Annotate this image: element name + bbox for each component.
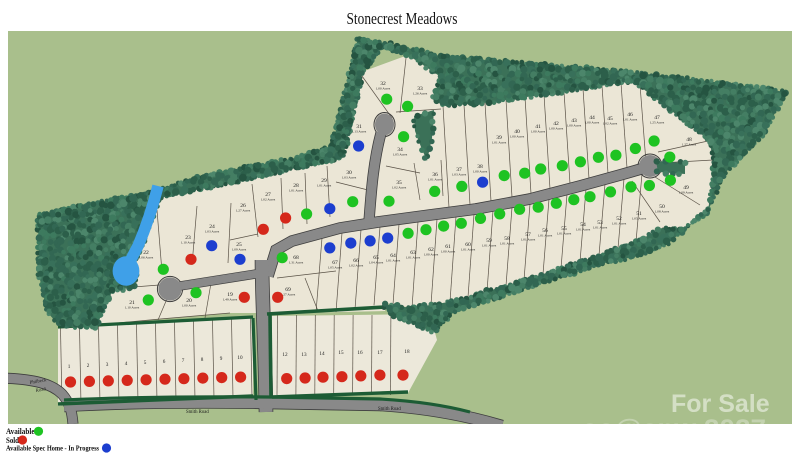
svg-text:1.00 Acres: 1.00 Acres xyxy=(376,87,391,91)
svg-text:1.02 Acres: 1.02 Acres xyxy=(392,186,407,190)
svg-text:1.09 Acres: 1.09 Acres xyxy=(679,191,694,195)
svg-text:6: 6 xyxy=(163,359,166,365)
svg-text:1.49 Acres: 1.49 Acres xyxy=(223,298,238,302)
svg-text:1.00 Acres: 1.00 Acres xyxy=(531,130,546,134)
svg-text:1.05 Acres: 1.05 Acres xyxy=(393,153,408,157)
svg-text:13: 13 xyxy=(301,352,307,358)
svg-text:1.01 Acres: 1.01 Acres xyxy=(538,234,553,238)
svg-text:1.00 Acres: 1.00 Acres xyxy=(424,253,439,257)
svg-text:10: 10 xyxy=(237,355,243,361)
svg-text:1.10 Acres: 1.10 Acres xyxy=(125,306,140,310)
svg-text:12: 12 xyxy=(282,352,288,358)
svg-text:2: 2 xyxy=(87,363,90,369)
svg-text:16: 16 xyxy=(357,350,363,356)
svg-text:1.01 Acres: 1.01 Acres xyxy=(289,189,304,193)
svg-text:1.03 Acres: 1.03 Acres xyxy=(205,230,220,234)
svg-text:18: 18 xyxy=(404,349,410,355)
svg-text:1.01 Acres: 1.01 Acres xyxy=(576,228,591,232)
svg-text:3: 3 xyxy=(106,362,109,368)
svg-text:1.01 Acres: 1.01 Acres xyxy=(406,256,421,260)
svg-text:1.00 Acres: 1.00 Acres xyxy=(473,170,488,174)
svg-text:4: 4 xyxy=(125,361,128,367)
svg-text:For Sale: For Sale xyxy=(671,390,770,418)
svg-text:1.05 Acres: 1.05 Acres xyxy=(632,217,647,221)
svg-text:1.06 Acres: 1.06 Acres xyxy=(139,256,154,260)
svg-text:1.04 Acres: 1.04 Acres xyxy=(369,261,384,265)
svg-text:15: 15 xyxy=(338,350,344,356)
svg-text:8: 8 xyxy=(201,357,204,363)
svg-text:1.09 Acres: 1.09 Acres xyxy=(232,248,247,252)
svg-text:1.01 Acres: 1.01 Acres xyxy=(492,141,507,145)
svg-text:1.26 Acres: 1.26 Acres xyxy=(413,92,428,96)
svg-text:Smith Road: Smith Road xyxy=(186,410,209,415)
svg-text:1.08 Acres: 1.08 Acres xyxy=(655,210,670,214)
svg-text:1.00 Acres: 1.00 Acres xyxy=(182,304,197,308)
svg-text:1.01 Acres: 1.01 Acres xyxy=(623,118,638,122)
svg-text:1.01 Acres: 1.01 Acres xyxy=(521,238,536,242)
svg-text:1.01 Acres: 1.01 Acres xyxy=(500,242,515,246)
svg-text:1.01 Acres: 1.01 Acres xyxy=(612,222,627,226)
svg-text:14: 14 xyxy=(319,351,325,357)
svg-text:1.13 Acres: 1.13 Acres xyxy=(352,130,367,134)
svg-text:Stonecrest Meadows: Stonecrest Meadows xyxy=(347,9,458,28)
svg-text:1.03 Acres: 1.03 Acres xyxy=(342,176,357,180)
svg-text:1.02 Acres: 1.02 Acres xyxy=(603,122,618,126)
svg-text:5: 5 xyxy=(144,360,147,366)
svg-text:9: 9 xyxy=(220,356,223,362)
svg-text:Available Spec Home - In Progr: Available Spec Home - In Progress xyxy=(6,446,99,453)
svg-text:1.01 Acres: 1.01 Acres xyxy=(557,232,572,236)
svg-text:1.01 Acres: 1.01 Acres xyxy=(386,259,401,263)
svg-text:17: 17 xyxy=(377,350,383,356)
svg-text:1.25 Acres: 1.25 Acres xyxy=(650,121,665,125)
svg-text:Sold: Sold xyxy=(6,436,19,445)
svg-text:1.27 Acres: 1.27 Acres xyxy=(236,209,251,213)
svg-text:1.00 Acres: 1.00 Acres xyxy=(549,127,564,131)
svg-text:1: 1 xyxy=(68,364,71,370)
svg-text:1.01 Acres: 1.01 Acres xyxy=(482,244,497,248)
svg-text:1.02 Acres: 1.02 Acres xyxy=(261,198,276,202)
svg-text:1.00 Acres: 1.00 Acres xyxy=(441,250,456,254)
svg-text:1.27 Acres: 1.27 Acres xyxy=(682,143,697,147)
svg-text:1.03 Acres: 1.03 Acres xyxy=(452,173,467,177)
svg-text:1.01 Acres: 1.01 Acres xyxy=(461,248,476,252)
svg-text:1.01 Acres: 1.01 Acres xyxy=(428,178,443,182)
svg-text:Available: Available xyxy=(6,427,35,436)
svg-text:1.05 Acres: 1.05 Acres xyxy=(328,266,343,270)
svg-text:1.00 Acres: 1.00 Acres xyxy=(585,121,600,125)
svg-text:1.01 Acres: 1.01 Acres xyxy=(317,184,332,188)
svg-text:7: 7 xyxy=(182,358,185,364)
svg-text:1.00 Acres: 1.00 Acres xyxy=(567,124,582,128)
svg-text:1.00 Acres: 1.00 Acres xyxy=(510,135,525,139)
svg-text:1.01 Acres: 1.01 Acres xyxy=(593,226,608,230)
svg-text:1.02 Acres: 1.02 Acres xyxy=(349,264,364,268)
svg-text:Smith Road: Smith Road xyxy=(378,407,401,412)
svg-text:1.31 Acres: 1.31 Acres xyxy=(289,261,304,265)
svg-text:1.10 Acres: 1.10 Acres xyxy=(181,241,196,245)
